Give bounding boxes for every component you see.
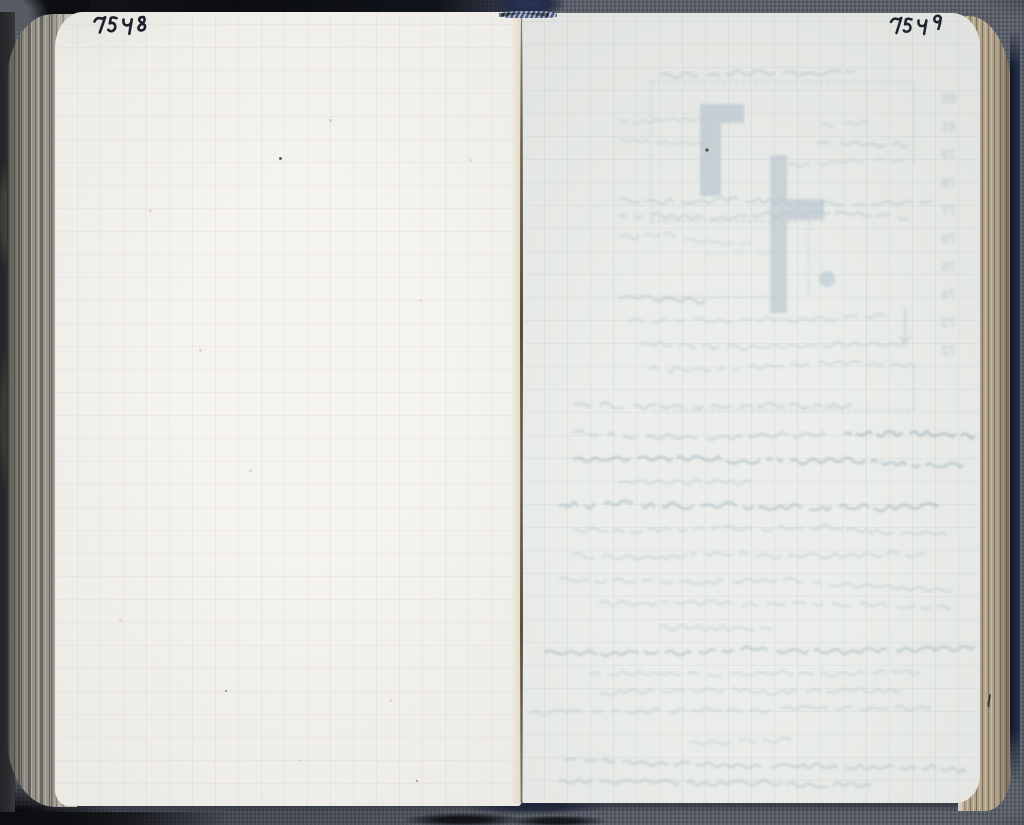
svg-text:77: 77 — [942, 203, 956, 218]
svg-text:78: 78 — [942, 175, 956, 190]
svg-text:79: 79 — [942, 147, 956, 162]
svg-text:75: 75 — [942, 259, 956, 274]
svg-text:72: 72 — [942, 343, 956, 358]
svg-text:76: 76 — [942, 231, 956, 246]
svg-text:73: 73 — [942, 315, 956, 330]
svg-text:85: 85 — [942, 91, 956, 106]
svg-text:74: 74 — [942, 287, 956, 302]
svg-text:81: 81 — [942, 119, 956, 134]
